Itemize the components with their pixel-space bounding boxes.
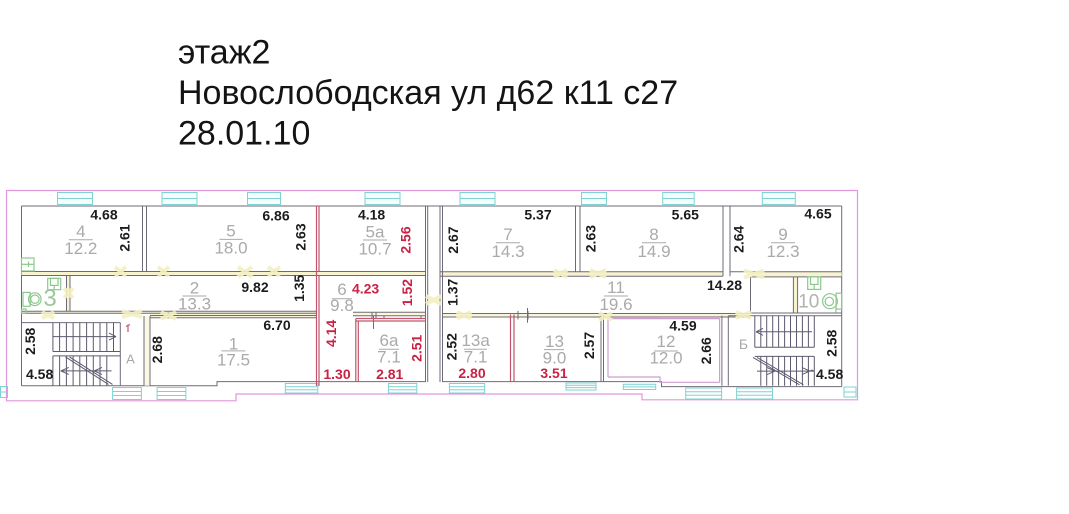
svg-text:2.68: 2.68 — [149, 336, 165, 363]
svg-text:5.65: 5.65 — [672, 206, 699, 222]
svg-text:9.82: 9.82 — [241, 279, 268, 295]
svg-text:2.63: 2.63 — [583, 225, 599, 252]
svg-text:4.59: 4.59 — [669, 317, 696, 333]
svg-text:4.68: 4.68 — [90, 207, 117, 223]
svg-text:1.52: 1.52 — [399, 279, 415, 306]
svg-text:2.63: 2.63 — [293, 223, 309, 250]
svg-text:1.37: 1.37 — [445, 278, 461, 305]
svg-text:2.57: 2.57 — [581, 332, 597, 359]
svg-text:7.1: 7.1 — [464, 347, 488, 366]
svg-text:2.67: 2.67 — [445, 226, 461, 253]
svg-text:7.1: 7.1 — [377, 347, 401, 366]
svg-text:6.70: 6.70 — [263, 317, 290, 333]
svg-text:18.0: 18.0 — [214, 239, 247, 258]
svg-text:14.9: 14.9 — [637, 242, 670, 261]
svg-text:1.35: 1.35 — [291, 274, 307, 301]
svg-text:А: А — [126, 351, 135, 366]
svg-text:14.28: 14.28 — [707, 277, 742, 293]
svg-text:14.3: 14.3 — [491, 242, 524, 261]
svg-text:28.01.10: 28.01.10 — [178, 114, 310, 152]
svg-text:2.61: 2.61 — [117, 224, 133, 251]
svg-text:Новослободская ул д62 к11 с27: Новослободская ул д62 к11 с27 — [178, 74, 678, 112]
svg-text:12.0: 12.0 — [649, 349, 682, 368]
svg-text:4.23: 4.23 — [352, 281, 379, 297]
svg-text:4.14: 4.14 — [323, 320, 339, 347]
svg-text:2.80: 2.80 — [458, 365, 485, 381]
svg-text:2.56: 2.56 — [397, 226, 413, 253]
svg-text:4.18: 4.18 — [358, 207, 385, 223]
svg-text:2.58: 2.58 — [22, 327, 38, 354]
svg-text:12.3: 12.3 — [766, 242, 799, 261]
svg-text:4.58: 4.58 — [816, 366, 843, 382]
svg-text:10: 10 — [798, 292, 819, 313]
svg-text:2.66: 2.66 — [698, 337, 714, 364]
svg-text:1.30: 1.30 — [323, 366, 350, 382]
svg-text:17.5: 17.5 — [217, 351, 250, 370]
svg-text:2.64: 2.64 — [730, 225, 746, 252]
svg-text:10.7: 10.7 — [358, 240, 391, 259]
svg-text:6.86: 6.86 — [262, 208, 289, 224]
svg-text:12.2: 12.2 — [64, 239, 97, 258]
svg-text:4.65: 4.65 — [804, 206, 831, 222]
svg-text:4.58: 4.58 — [26, 366, 53, 382]
svg-text:19.6: 19.6 — [599, 295, 632, 314]
svg-text:5.37: 5.37 — [524, 206, 551, 222]
svg-text:9.0: 9.0 — [543, 349, 567, 368]
svg-text:Б: Б — [739, 336, 748, 352]
svg-text:2.52: 2.52 — [443, 333, 459, 360]
svg-text:9.8: 9.8 — [330, 296, 354, 315]
svg-text:2.81: 2.81 — [376, 366, 403, 382]
svg-text:2.51: 2.51 — [409, 334, 425, 361]
svg-text:3: 3 — [43, 285, 56, 312]
svg-text:2.58: 2.58 — [824, 329, 840, 356]
svg-text:этаж2: этаж2 — [178, 34, 270, 72]
svg-text:13.3: 13.3 — [178, 294, 211, 313]
